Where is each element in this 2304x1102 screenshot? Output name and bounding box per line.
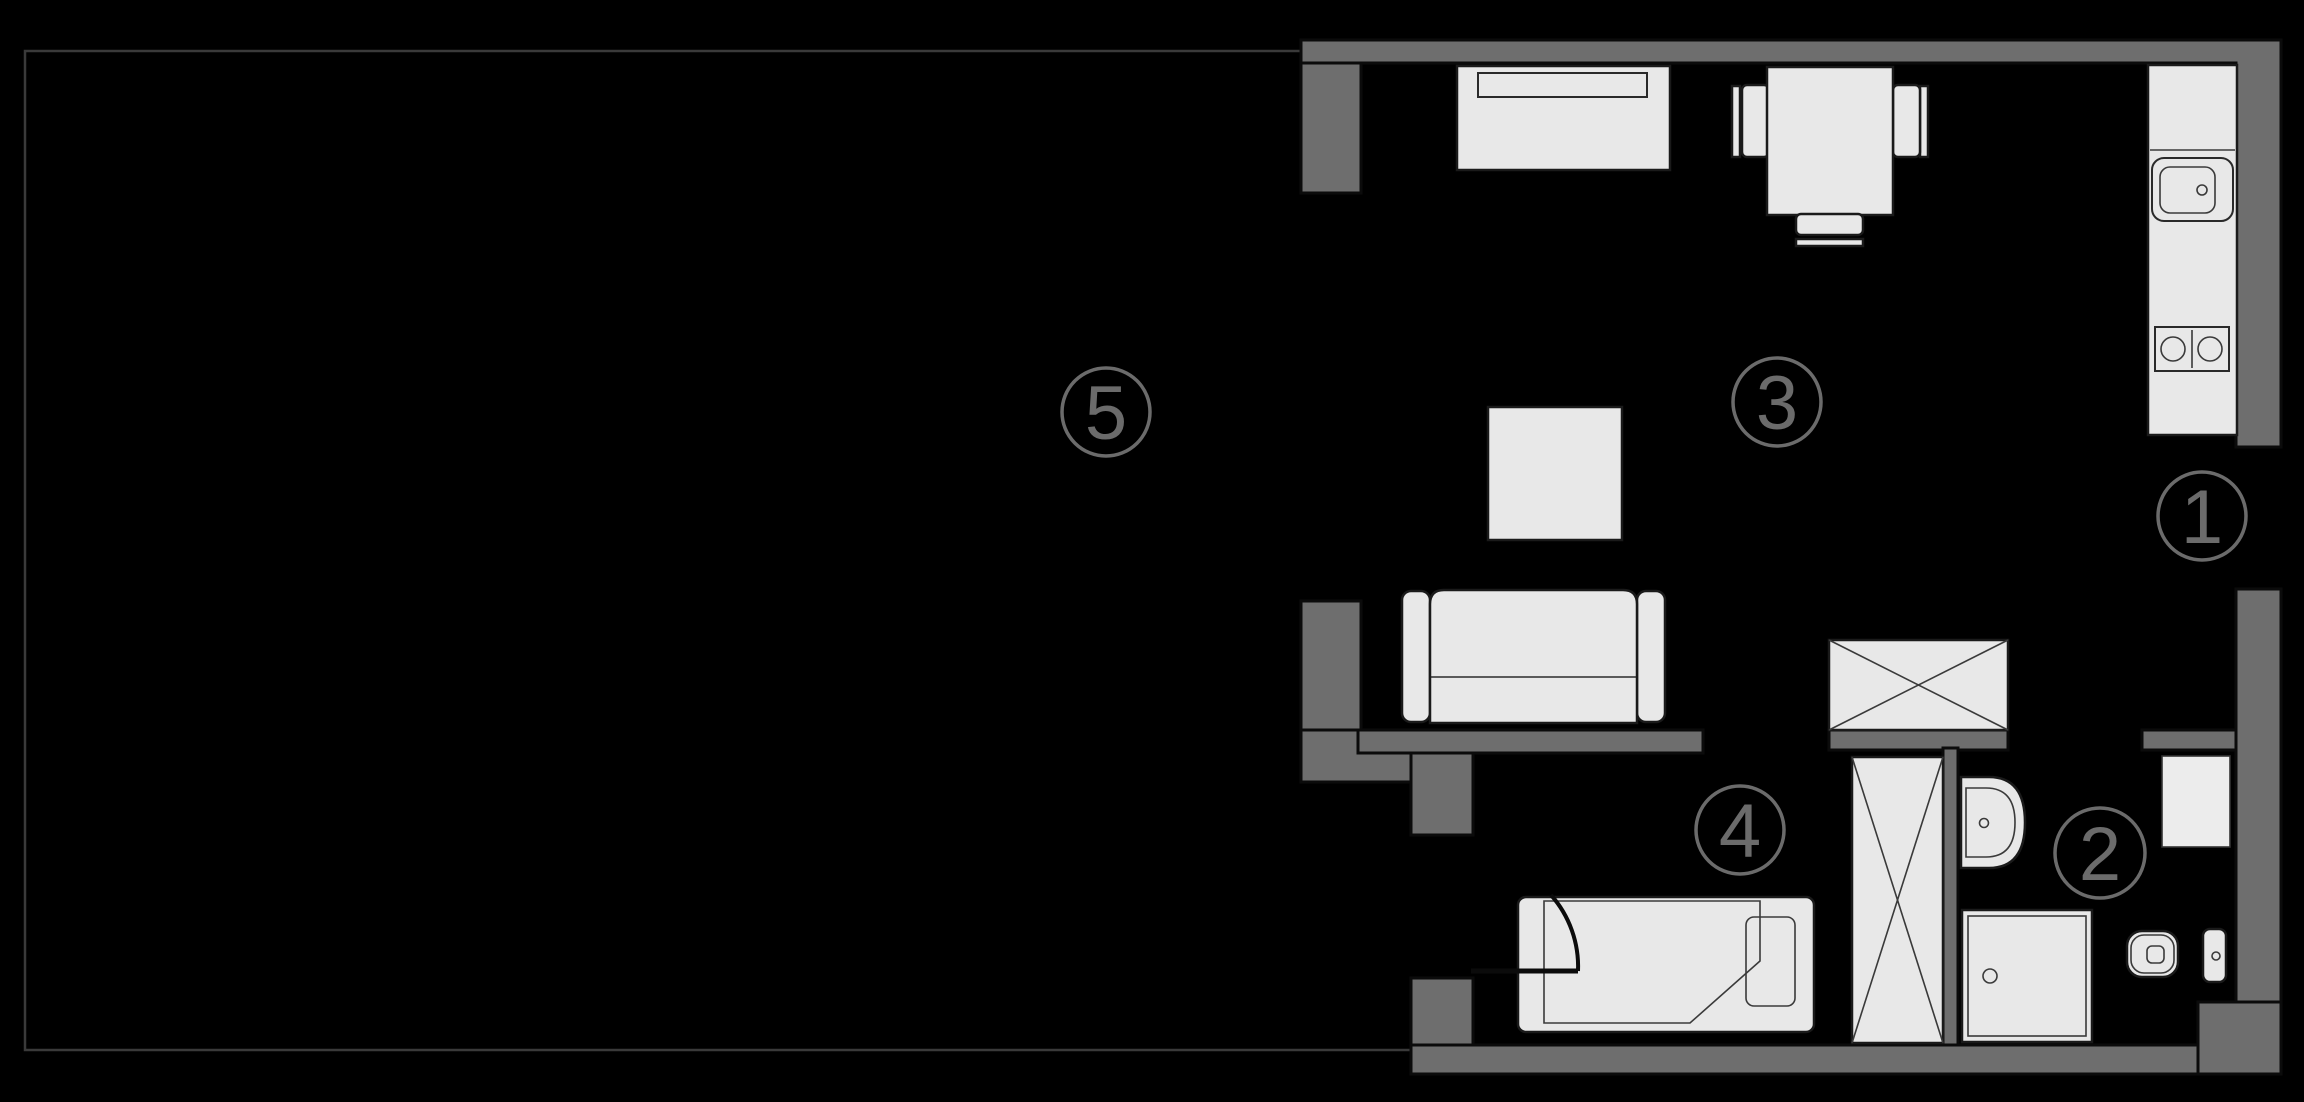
chair-left-seat — [1742, 85, 1769, 157]
wall-bottom-band — [1411, 1045, 2281, 1074]
sofa-icon — [1402, 590, 1665, 723]
room-label-number-3: 3 — [1756, 361, 1798, 446]
kitchen-furniture — [2148, 65, 2237, 435]
bed-icon — [1518, 897, 1814, 1032]
wall-room3-room4-band — [1358, 730, 1703, 753]
kitchen-counter — [2148, 65, 2237, 435]
chair-bottom-back — [1796, 239, 1863, 246]
wall-room4-left-lower — [1411, 978, 1473, 1048]
washbasin-icon — [1961, 777, 2025, 868]
toilet-tank — [2203, 929, 2226, 982]
chair-right-seat — [1893, 85, 1920, 157]
room-label-number-4: 4 — [1719, 789, 1761, 874]
chair-bottom-seat — [1796, 214, 1863, 235]
table-top — [1767, 67, 1893, 215]
floor-plan-page: 12345 — [0, 0, 2304, 1102]
appliance-square-icon — [1829, 640, 2008, 730]
sofa-body — [1430, 590, 1637, 723]
wall-room4-bath-partition — [1943, 748, 1958, 1045]
bathroom-shelf — [2162, 756, 2230, 847]
wardrobe-icon — [1852, 757, 1943, 1043]
wall-bottom-right-block — [2198, 1002, 2281, 1074]
sofa-armrest-right — [1637, 591, 1665, 722]
room-label-number-1: 1 — [2181, 475, 2223, 560]
room-label-number-5: 5 — [1085, 371, 1127, 456]
floor-plan: 12345 — [0, 0, 2304, 1102]
chair-left-back — [1732, 86, 1740, 157]
wall-right-lower — [2236, 589, 2281, 1002]
sofa-armrest-left — [1402, 591, 1430, 722]
side-table-icon — [1488, 407, 1622, 540]
wall-bath-top-right — [2142, 730, 2238, 750]
wall-band-under-appliance — [1829, 730, 2008, 750]
wall-left-pier-top — [1301, 63, 1361, 193]
sideboard-icon — [1457, 66, 1670, 170]
shower-icon — [1962, 910, 2092, 1042]
wall-room4-left-upper — [1411, 753, 1473, 835]
room-label-number-2: 2 — [2079, 812, 2121, 897]
